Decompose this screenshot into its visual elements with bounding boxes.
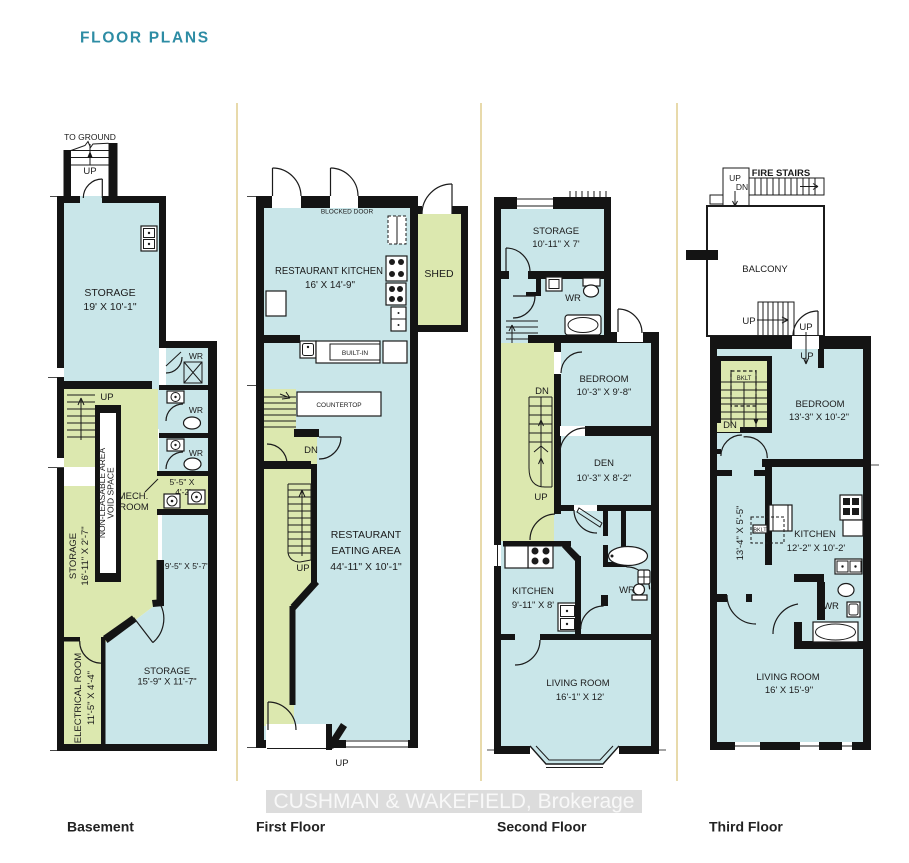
svg-text:BEDROOM: BEDROOM xyxy=(579,374,628,385)
svg-text:16'-11" X 2'-7": 16'-11" X 2'-7" xyxy=(80,526,91,585)
svg-text:FLOOR PLANS: FLOOR PLANS xyxy=(80,30,210,47)
svg-text:12'-2" X 10'-2': 12'-2" X 10'-2' xyxy=(787,543,846,554)
svg-text:Basement: Basement xyxy=(67,819,134,835)
svg-text:DN: DN xyxy=(736,182,748,192)
svg-text:10'-3" X 8'-2": 10'-3" X 8'-2" xyxy=(577,473,632,484)
svg-text:KITCHEN: KITCHEN xyxy=(794,529,836,540)
svg-text:UP: UP xyxy=(335,758,348,769)
svg-text:RESTAURANT KITCHEN: RESTAURANT KITCHEN xyxy=(275,265,383,277)
svg-text:UP: UP xyxy=(742,316,755,327)
svg-text:RESTAURANT: RESTAURANT xyxy=(331,529,402,541)
svg-text:10'-3" X 9'-8": 10'-3" X 9'-8" xyxy=(577,387,632,398)
svg-text:9'-5" X 5'-7": 9'-5" X 5'-7" xyxy=(165,561,209,571)
svg-text:5'-5" X: 5'-5" X xyxy=(170,477,195,487)
svg-text:WR: WR xyxy=(823,601,839,612)
svg-text:DEN: DEN xyxy=(594,458,614,469)
svg-text:STORAGE: STORAGE xyxy=(84,287,135,299)
svg-text:DN: DN xyxy=(723,420,737,431)
svg-text:BLOCKED DOOR: BLOCKED DOOR xyxy=(321,209,374,216)
svg-text:BEDROOM: BEDROOM xyxy=(795,399,844,410)
svg-text:STORAGE: STORAGE xyxy=(68,533,79,579)
svg-text:LIVING ROOM: LIVING ROOM xyxy=(756,672,819,683)
svg-text:UP: UP xyxy=(800,351,813,362)
svg-text:WR: WR xyxy=(565,293,581,304)
svg-text:UP: UP xyxy=(799,322,812,333)
svg-text:COUNTERTOP: COUNTERTOP xyxy=(316,402,361,409)
svg-text:16'-1" X 12': 16'-1" X 12' xyxy=(556,692,604,703)
svg-text:15'-9" X 11'-7": 15'-9" X 11'-7" xyxy=(137,677,196,688)
svg-text:UP: UP xyxy=(296,563,309,574)
svg-text:BKLT: BKLT xyxy=(753,528,767,534)
svg-text:UP: UP xyxy=(83,166,96,177)
svg-text:EATING AREA: EATING AREA xyxy=(331,545,400,557)
svg-text:First Floor: First Floor xyxy=(256,819,326,835)
svg-text:CUSHMAN & WAKEFIELD, Brokerage: CUSHMAN & WAKEFIELD, Brokerage xyxy=(274,790,635,813)
svg-text:WR: WR xyxy=(189,351,203,361)
svg-text:WR: WR xyxy=(189,448,203,458)
svg-text:16' X 14'-9": 16' X 14'-9" xyxy=(305,279,355,291)
svg-text:Second Floor: Second Floor xyxy=(497,819,587,835)
svg-text:BKLT: BKLT xyxy=(737,376,752,382)
svg-text:TO GROUND: TO GROUND xyxy=(64,132,116,142)
svg-text:FIRE STAIRS: FIRE STAIRS xyxy=(752,168,810,179)
svg-text:KITCHEN: KITCHEN xyxy=(512,586,554,597)
svg-text:ELECTRICAL ROOM: ELECTRICAL ROOM xyxy=(73,653,84,744)
svg-text:BALCONY: BALCONY xyxy=(742,264,788,275)
svg-text:VOID SPACE: VOID SPACE xyxy=(106,467,116,519)
svg-text:BUILT-IN: BUILT-IN xyxy=(342,350,369,357)
svg-text:UP: UP xyxy=(100,392,113,403)
svg-text:WR: WR xyxy=(619,585,635,596)
svg-text:LIVING ROOM: LIVING ROOM xyxy=(546,678,609,689)
svg-text:13'-4" X 5'-5": 13'-4" X 5'-5" xyxy=(735,506,746,561)
svg-text:13'-3" X 10'-2": 13'-3" X 10'-2" xyxy=(789,412,849,423)
svg-text:DN: DN xyxy=(304,445,318,456)
svg-text:11'-5" X 4'-4": 11'-5" X 4'-4" xyxy=(86,671,97,725)
svg-text:STORAGE: STORAGE xyxy=(144,666,190,677)
svg-text:SHED: SHED xyxy=(424,268,454,280)
svg-text:MECH.: MECH. xyxy=(118,491,149,502)
svg-text:UP: UP xyxy=(534,492,547,503)
svg-text:19' X 10'-1": 19' X 10'-1" xyxy=(83,301,137,313)
svg-text:9'-11" X 8': 9'-11" X 8' xyxy=(512,600,554,611)
svg-text:10'-11" X 7': 10'-11" X 7' xyxy=(532,239,580,250)
svg-text:44'-11" X 10'-1": 44'-11" X 10'-1" xyxy=(330,561,402,573)
svg-text:Third Floor: Third Floor xyxy=(709,819,783,835)
svg-text:WR: WR xyxy=(189,405,203,415)
svg-text:DN: DN xyxy=(535,386,549,397)
svg-text:STORAGE: STORAGE xyxy=(533,226,579,237)
svg-text:16' X 15'-9": 16' X 15'-9" xyxy=(765,685,813,696)
svg-text:ROOM: ROOM xyxy=(119,502,149,513)
